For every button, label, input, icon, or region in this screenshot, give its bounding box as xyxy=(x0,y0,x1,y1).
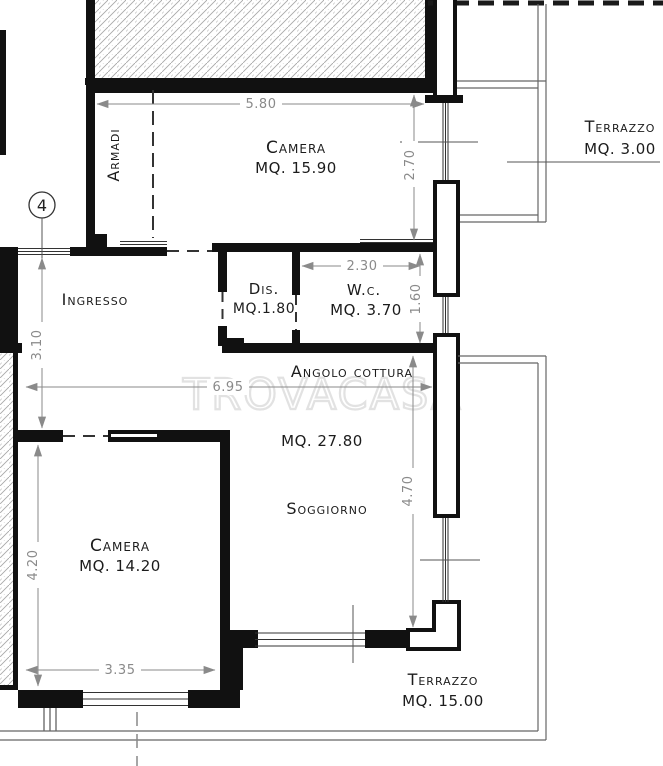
area-wc: MQ. 3.70 xyxy=(330,301,402,319)
area-camera-top: MQ. 15.90 xyxy=(255,159,337,177)
hatched-wall-left xyxy=(0,353,18,690)
dim-soggiorno-depth: 4.70 xyxy=(401,476,416,507)
area-terrazzo-top: MQ. 3.00 xyxy=(584,140,656,158)
dim-camera-top-depth: 2.70 xyxy=(403,150,418,181)
dim-wc-width: 2.30 xyxy=(347,259,378,274)
floor-plan-page: trovacasa xyxy=(0,0,663,766)
label-camera-bottom: Camera xyxy=(90,536,150,556)
dim-camera-bottom-width: 3.35 xyxy=(105,663,136,678)
label-soggiorno: Soggiorno xyxy=(286,499,367,518)
floor-plan: trovacasa xyxy=(0,0,663,766)
label-ingresso: Ingresso xyxy=(62,290,129,309)
dim-wc-depth: 1.60 xyxy=(409,284,424,315)
label-dis: Dis. xyxy=(249,280,280,298)
label-terrazzo-top: Terrazzo xyxy=(584,117,656,136)
unit-badge-number: 4 xyxy=(37,196,47,215)
window-terrace-divider xyxy=(44,708,56,731)
corner-pillar xyxy=(408,602,459,649)
dashed-lines xyxy=(63,90,296,766)
area-dis: MQ.1.80 xyxy=(233,301,295,317)
label-terrazzo-bottom: Terrazzo xyxy=(407,670,479,689)
label-camera-top: Camera xyxy=(266,138,326,158)
label-armadi: Armadi xyxy=(104,128,123,181)
dim-living-width: 6.95 xyxy=(213,380,244,395)
window-soggiorno-right xyxy=(420,518,480,602)
area-soggiorno: MQ. 27.80 xyxy=(281,432,363,450)
window-camera-bottom xyxy=(83,693,188,706)
area-camera-bottom: MQ. 14.20 xyxy=(79,557,161,575)
area-terrazzo-bottom: MQ. 15.00 xyxy=(402,692,484,710)
dim-ingresso-depth: 3.10 xyxy=(30,330,45,361)
window-ingresso xyxy=(18,249,70,255)
label-angolo-cottura: Angolo cottura xyxy=(291,362,413,381)
hatched-wall-top xyxy=(85,0,437,85)
dim-camera-top-width: 5.80 xyxy=(246,97,277,112)
window-soggiorno-bottom xyxy=(255,605,365,663)
dim-camera-bottom-depth: 4.20 xyxy=(26,550,41,581)
window-wc xyxy=(443,297,448,333)
label-wc: W.c. xyxy=(347,281,381,299)
